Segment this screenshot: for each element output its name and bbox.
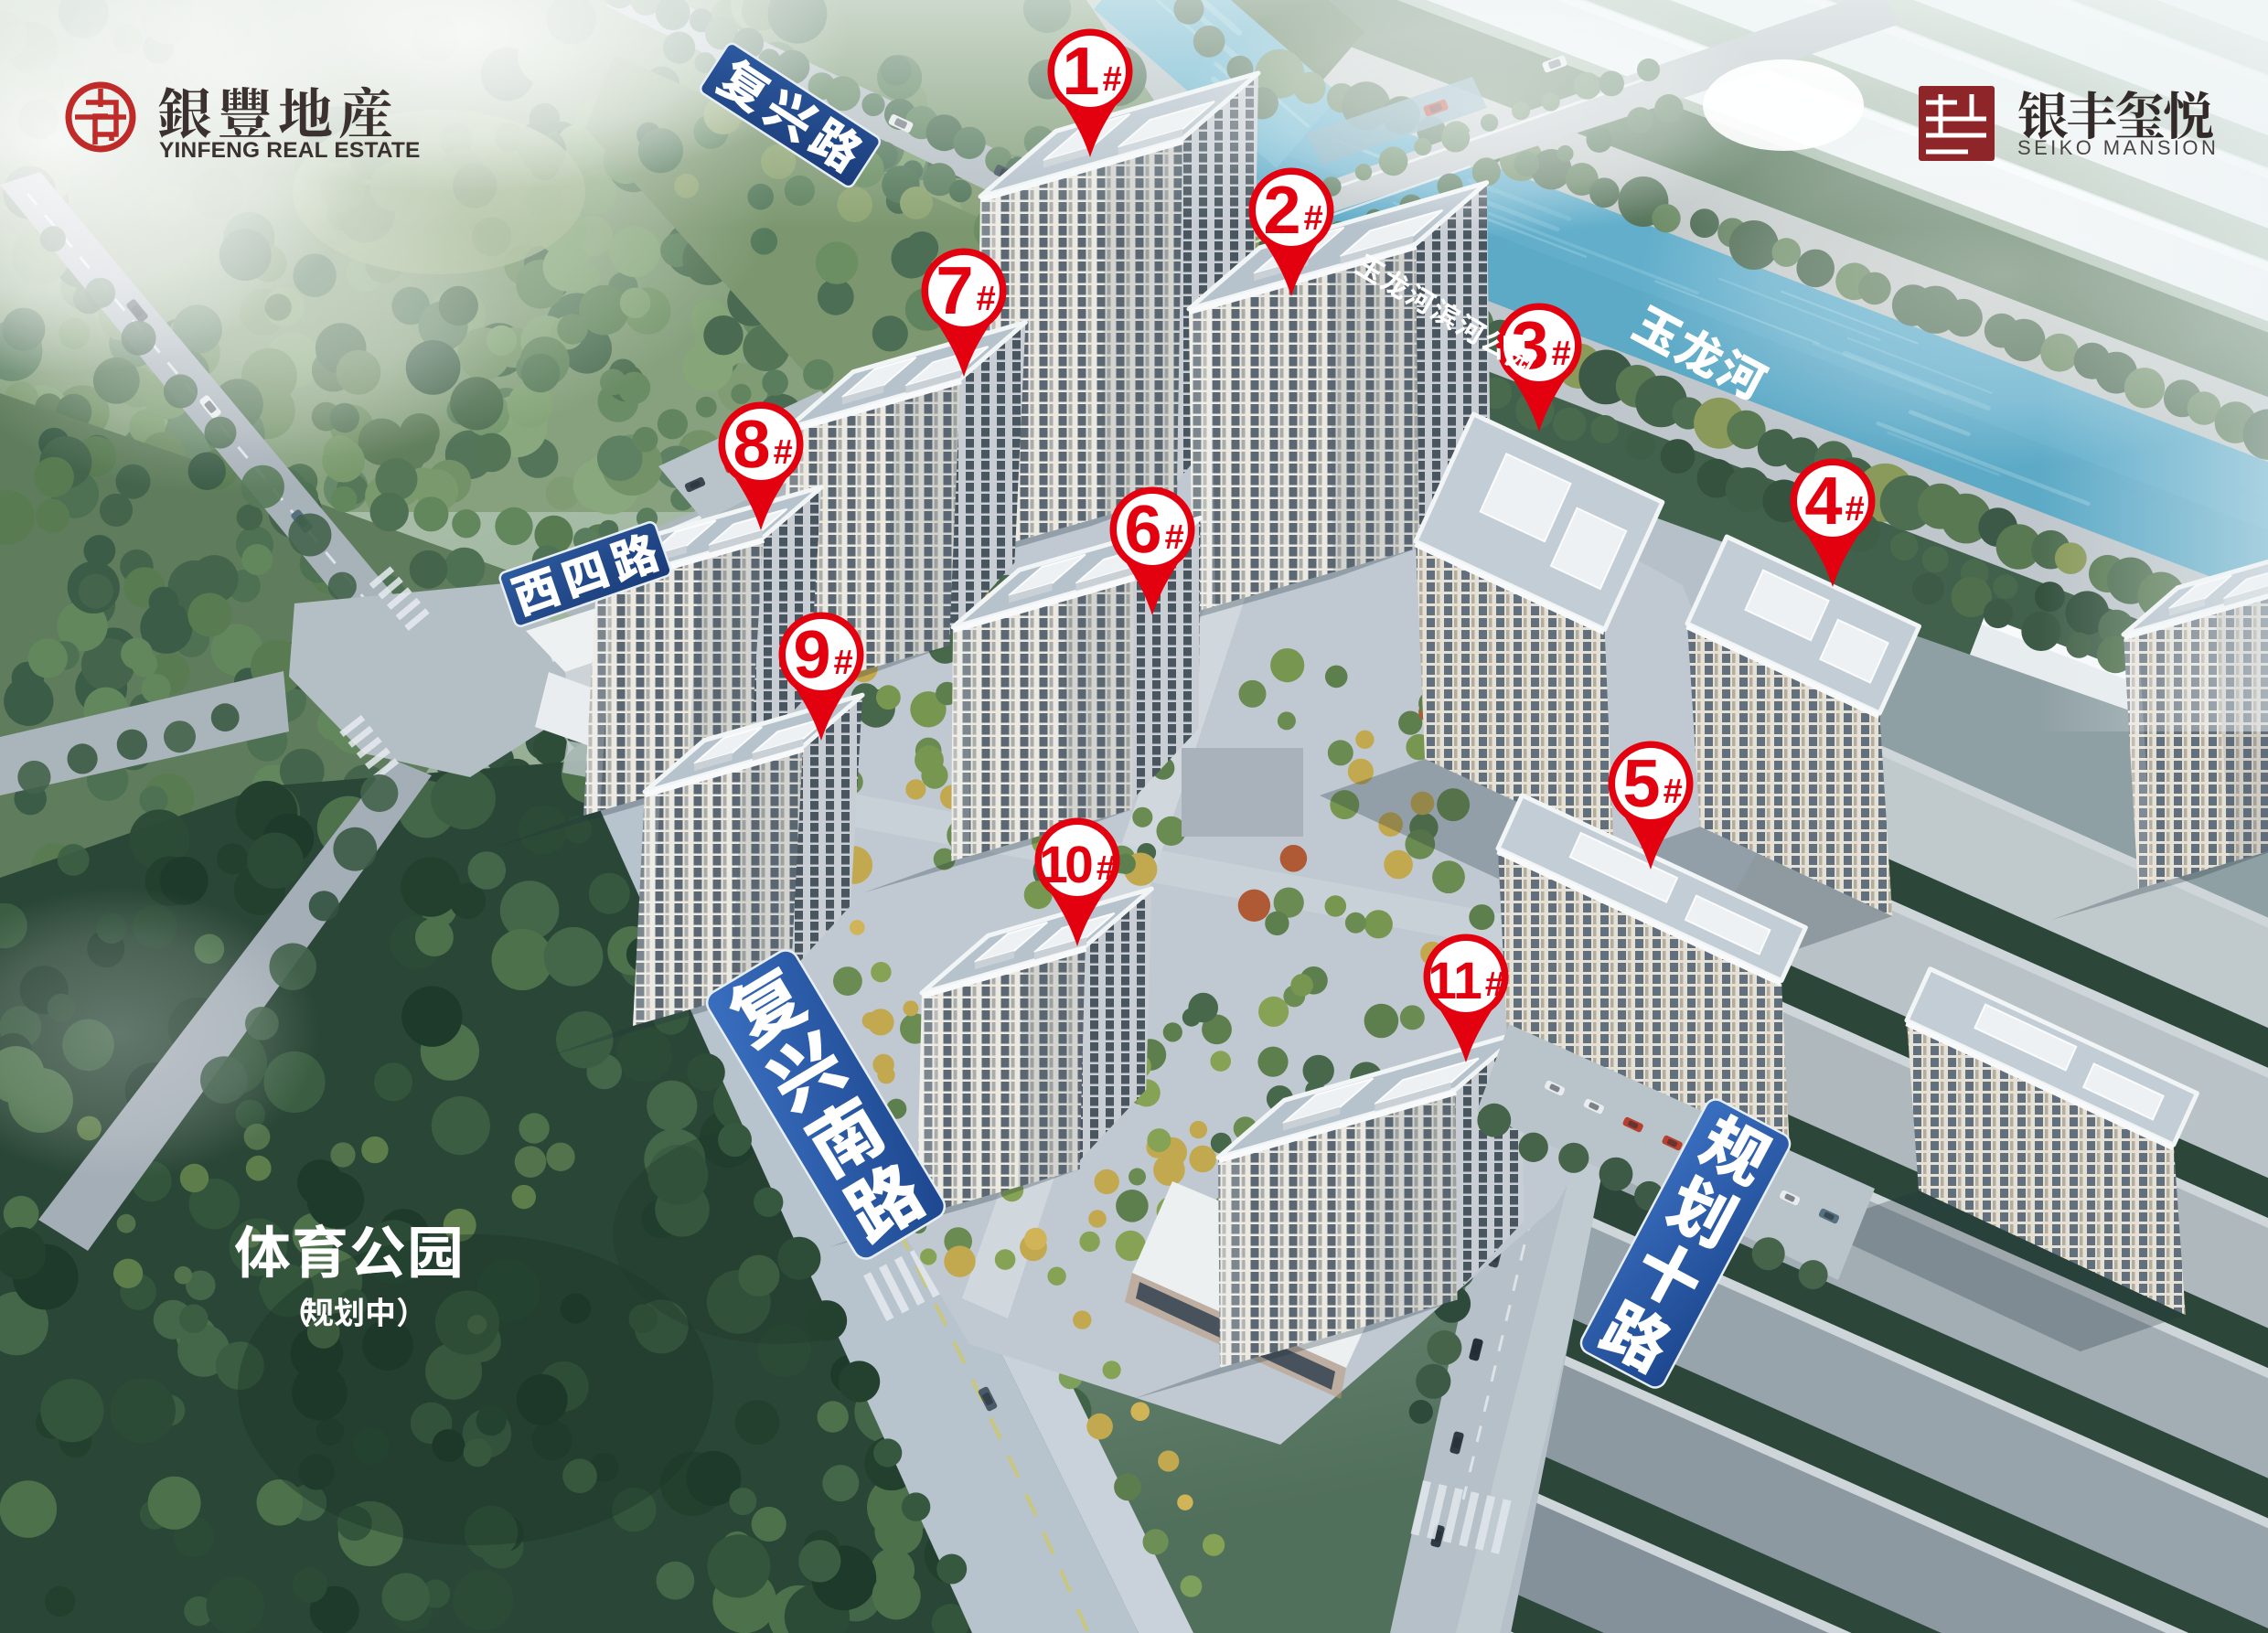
svg-text:YINFENG REAL ESTATE: YINFENG REAL ESTATE bbox=[159, 138, 421, 163]
svg-text:SEIKO MANSION: SEIKO MANSION bbox=[2017, 136, 2219, 159]
